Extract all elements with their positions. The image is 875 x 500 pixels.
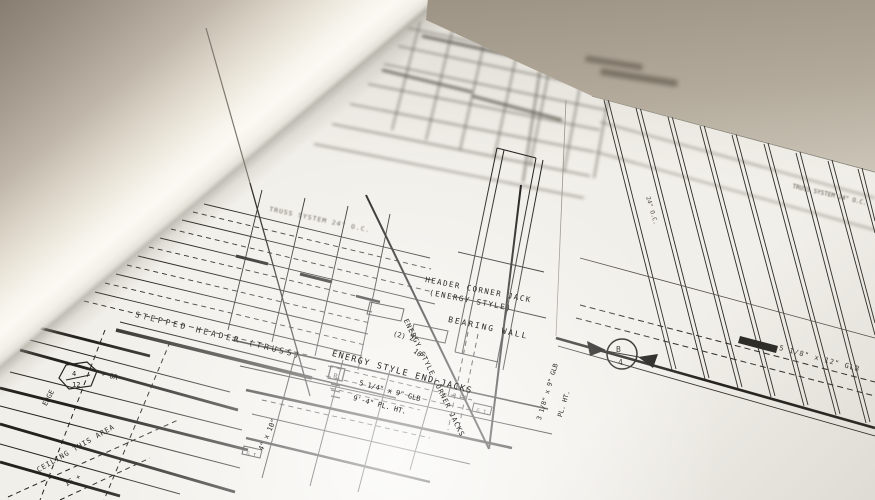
roll-crease-line bbox=[206, 28, 250, 183]
roll-crease-overlay bbox=[0, 0, 875, 500]
blueprint-photo: B 4 4 12 R G.I. G.I. G.I. bbox=[0, 0, 875, 500]
